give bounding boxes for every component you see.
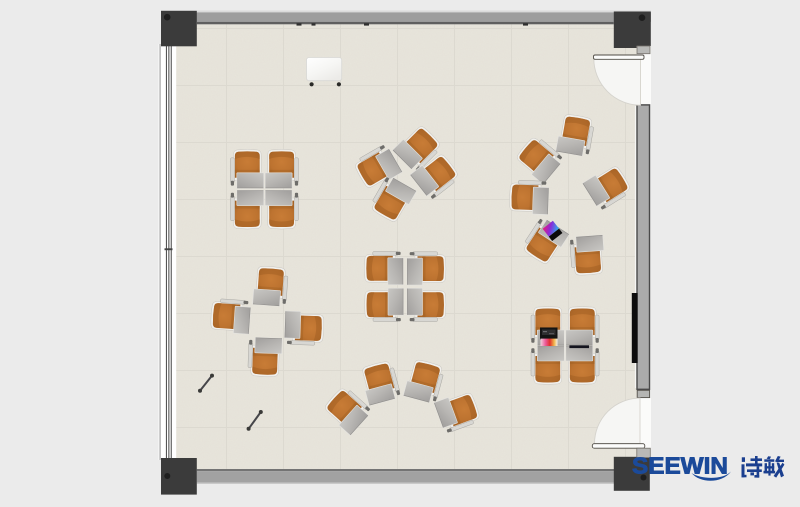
svg-text:SEEWIN: SEEWIN <box>632 453 728 479</box>
